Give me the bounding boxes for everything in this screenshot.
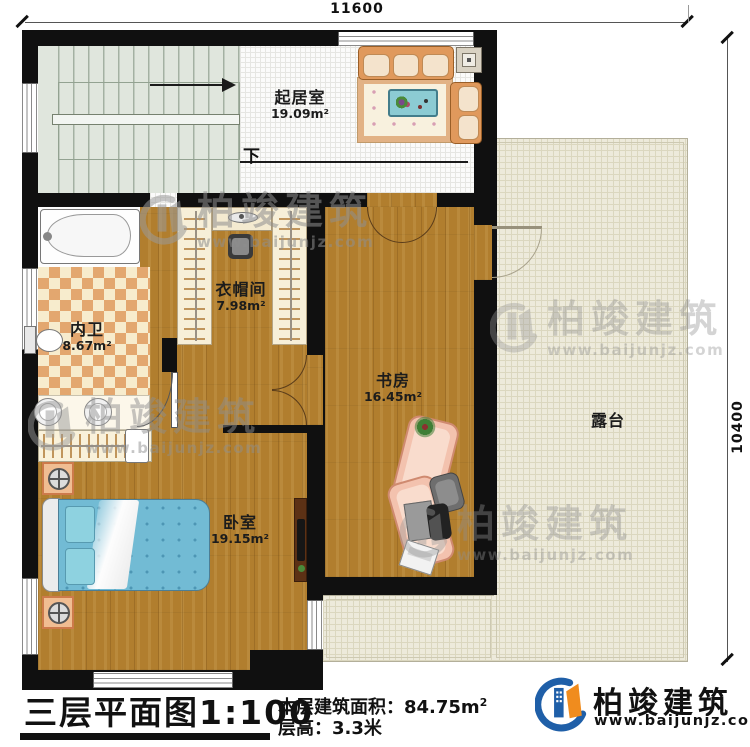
bathtub <box>40 209 140 264</box>
brand-url: www.baijunjz.com <box>594 713 750 729</box>
nightstand-top <box>42 462 74 495</box>
desk-plant-icon <box>414 416 436 438</box>
toilet-bowl <box>36 329 63 352</box>
dimension-line-top <box>25 22 688 23</box>
stair-railing <box>52 114 240 125</box>
sofa-cushion <box>458 115 479 141</box>
room-label-study: 书房16.45m² <box>364 372 422 404</box>
lamp-icon <box>48 468 70 490</box>
cloak-study-doorway-floor <box>307 355 323 425</box>
dresser <box>212 207 272 231</box>
cloak-wall-stub <box>162 338 177 372</box>
sink-left <box>34 398 62 426</box>
sofa-cushion <box>458 86 479 112</box>
dimension-right-label: 10400 <box>730 400 746 454</box>
floor-area-sup: 2 <box>480 696 488 709</box>
room-label-terrace: 露台 <box>591 412 625 430</box>
bed <box>58 499 210 591</box>
extension-line <box>688 5 689 22</box>
sofa-cushion <box>393 54 420 77</box>
study-terrace-doorway-floor <box>474 225 492 280</box>
bedroom-closet <box>38 430 152 462</box>
window-stairs-left <box>22 83 38 153</box>
sofa-top <box>358 46 454 80</box>
lamp-icon <box>48 602 70 624</box>
stair-direction-arrowhead <box>222 78 236 92</box>
closet-door-leaf <box>125 429 149 463</box>
wardrobe-left <box>177 207 212 345</box>
sofa-cushion <box>422 54 449 77</box>
room-label-living: 起居室19.09m² <box>271 89 329 121</box>
sofa-right <box>450 82 482 144</box>
floor-height-line: 层高：3.3米 <box>278 716 382 741</box>
floor-area-value: 84.75m <box>404 697 480 718</box>
floor-plan-canvas: 下 <box>0 0 750 747</box>
window-bedroom-terrace <box>307 600 323 650</box>
stair-direction-line <box>150 84 222 86</box>
dimension-top-label: 11600 <box>330 1 384 17</box>
terrace-floor-main <box>492 138 688 662</box>
plan-title: 三层平面图1:100 <box>24 686 314 734</box>
flower-decor <box>396 96 412 110</box>
stair-down-label: 下 <box>243 142 260 167</box>
window-bedroom-left <box>22 578 38 655</box>
bedroom-corner-wall <box>250 650 323 690</box>
brand-logo-icon <box>535 676 587 738</box>
coffee-table <box>388 89 438 117</box>
plant-icon <box>298 565 305 572</box>
pillow-top <box>65 506 95 543</box>
dimension-line-right <box>727 38 728 662</box>
pillow-bottom <box>65 548 95 585</box>
room-label-bedroom: 卧室19.15m² <box>211 514 269 546</box>
window-living-top <box>338 32 474 46</box>
plan-title-text: 三层平面图 <box>24 693 199 732</box>
bathtub-faucet-icon <box>43 232 52 241</box>
room-label-cloak: 衣帽间7.98m² <box>215 281 266 313</box>
terrace-floor-lower <box>322 595 494 662</box>
sofa-cushion <box>363 54 390 77</box>
dresser-stool <box>228 234 253 259</box>
tv-cabinet <box>294 498 307 582</box>
closet-rail <box>41 445 127 447</box>
stair-down-leader-line <box>240 161 468 163</box>
sink-right <box>84 398 112 426</box>
title-underline <box>20 733 270 740</box>
hall-bedroom-wall <box>223 425 307 433</box>
toilet-tank <box>24 326 36 354</box>
corner-side-table <box>456 47 482 73</box>
bathtub-basin <box>47 214 131 257</box>
wardrobe-right <box>272 207 307 345</box>
living-study-doorway-floor <box>367 193 437 207</box>
tv-screen <box>297 519 305 561</box>
nightstand-bottom <box>42 596 74 629</box>
floor-area-label: 本层建筑面积： <box>278 697 404 718</box>
room-label-bath: 内卫8.67m² <box>62 321 111 353</box>
